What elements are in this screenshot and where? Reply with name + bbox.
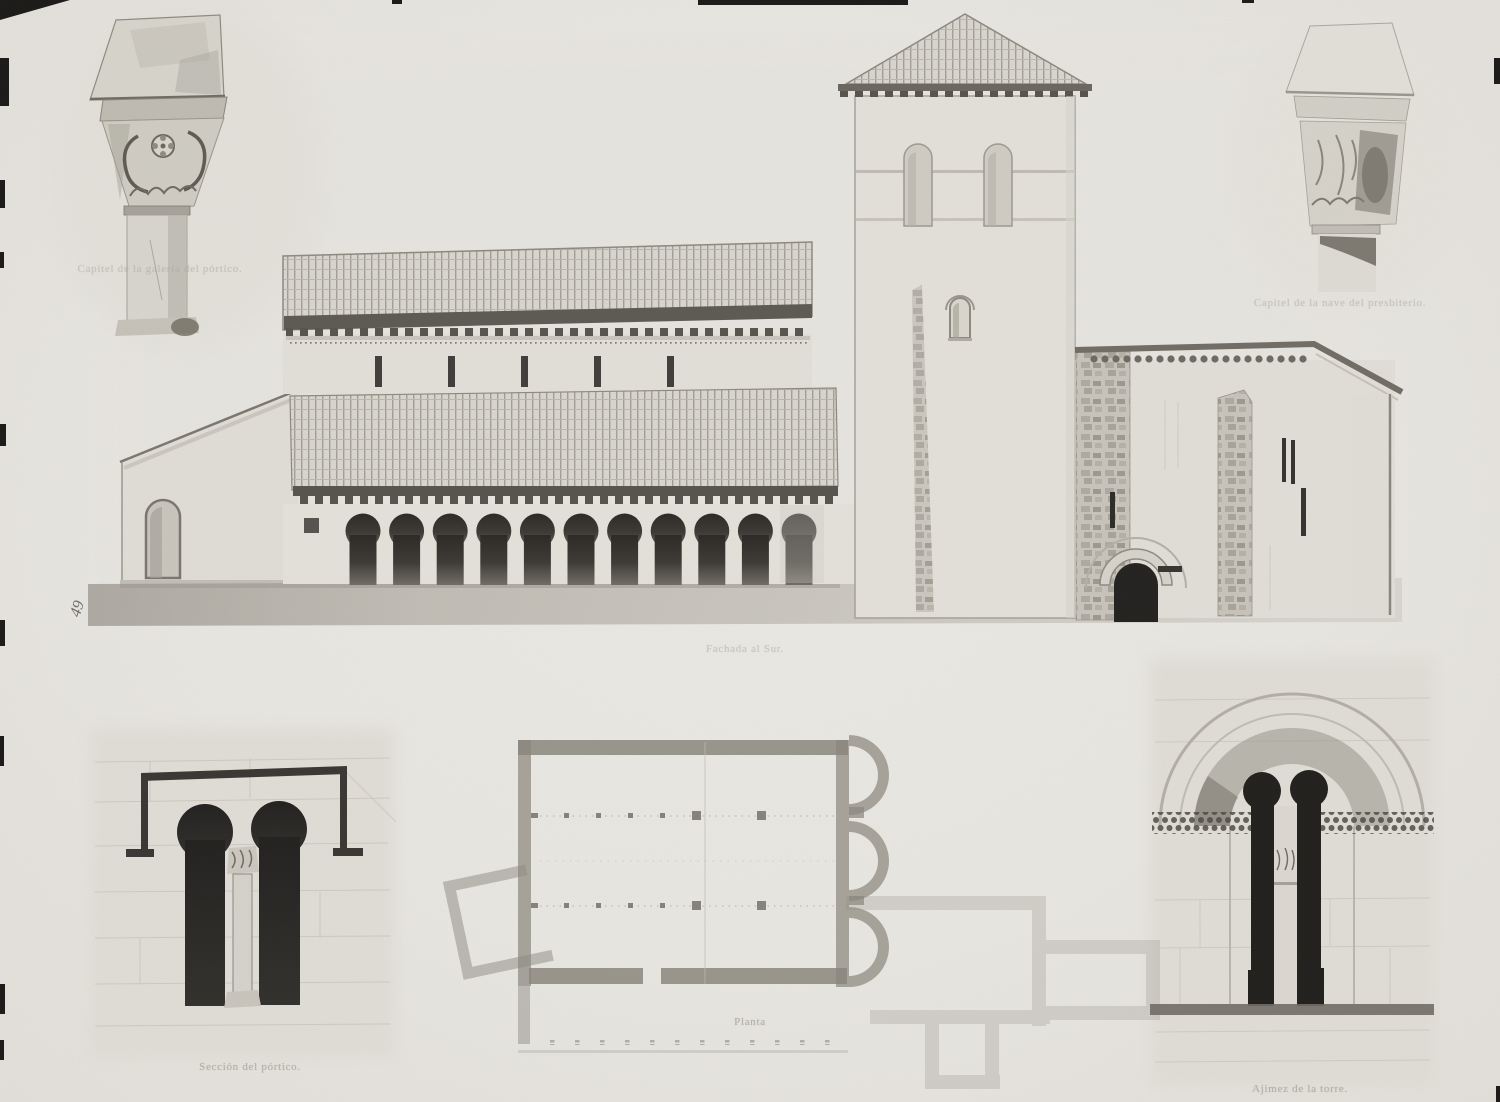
arcade-arch: [564, 514, 599, 586]
east-rubble-pier: [1218, 390, 1252, 616]
plan-east-extension-ghost: [846, 896, 1160, 1089]
clerestory-slit-window: [594, 356, 601, 387]
capital-left-molding: [100, 97, 227, 121]
nave-block: [283, 242, 855, 585]
string-course-dotted: [290, 342, 808, 345]
east-slit-window: [1282, 438, 1286, 482]
ajimez-sill: [1150, 1004, 1434, 1015]
plate-drawing: [0, 0, 1500, 1102]
small-square-window: [304, 518, 319, 533]
portico-roof: [290, 388, 838, 490]
scan-edge-artifact: [0, 180, 5, 208]
ajimez-mullion-shaft: [1274, 806, 1297, 1006]
scan-edge-artifact: [0, 0, 70, 20]
arcade-arch: [346, 514, 381, 586]
portico-eave-corbels: [295, 496, 836, 504]
arcade-arch: [607, 514, 642, 586]
arcade-arch: [738, 514, 773, 586]
scan-edge-artifact: [392, 0, 402, 4]
tower-string-course: [856, 170, 1074, 173]
caption-plan: Planta: [700, 1016, 800, 1028]
plan-south-wall: [529, 968, 643, 984]
portico-eave-fascia: [293, 486, 838, 496]
scan-edge-artifact: [698, 0, 908, 5]
arcade-arch: [694, 514, 729, 586]
scan-edge-artifact: [0, 58, 9, 106]
bell-tower: [838, 14, 1092, 618]
scan-edge-artifact: [0, 424, 6, 446]
caption-tower-window: Ajimez de la torre.: [1180, 1083, 1420, 1095]
tower-eave-corbels: [840, 91, 1090, 97]
east-end: [1075, 344, 1402, 622]
scan-edge-artifact: [0, 252, 4, 268]
plan-apse: [849, 821, 889, 901]
clerestory-slit-window: [375, 356, 382, 387]
caption-capital-right: Capitel de la nave del presbiterio.: [1215, 297, 1465, 309]
arcade-arch: [389, 514, 424, 586]
plan-columns: [531, 811, 766, 910]
plan-north-wall: [518, 740, 848, 755]
tower-eave-fascia: [838, 84, 1092, 91]
clerestory-slit-window: [667, 356, 674, 387]
arcade-arch: [520, 514, 555, 586]
capital-left-neck-ring: [124, 206, 190, 215]
plan-west-annex: [443, 863, 554, 980]
mullion-base: [224, 990, 261, 1008]
ajimez-mullion: [1274, 806, 1297, 1006]
arcade-arch: [476, 514, 511, 586]
plan-portico-columns: [540, 1040, 845, 1045]
east-slit-window: [1301, 488, 1306, 536]
east-slit-window: [1291, 440, 1295, 484]
caption-elevation: Fachada al Sur.: [635, 643, 855, 655]
clerestory-slit-window: [448, 356, 455, 387]
tower-body: [855, 96, 1075, 618]
plan-west-wall: [518, 740, 531, 986]
scan-edge-artifact: [0, 620, 5, 646]
capital-right-neck-ring: [1312, 225, 1380, 234]
nave-eave-corbels: [286, 328, 808, 336]
clerestory-slit-window: [521, 356, 528, 387]
scan-edge-artifact: [1494, 58, 1500, 84]
caption-window-section: Sección del pórtico.: [120, 1061, 380, 1073]
arcade-arch: [651, 514, 686, 586]
arcade-arch: [433, 514, 468, 586]
portal-door-opening: [1114, 563, 1158, 622]
scan-edge-artifact: [0, 984, 5, 1014]
plan-apse: [849, 735, 889, 815]
east-corner-pier: [1352, 394, 1392, 616]
east-corbel-table: [1088, 352, 1310, 367]
caption-capital-left: Capitel de la galería del pórtico.: [40, 263, 280, 275]
portico-arcade: [346, 514, 817, 586]
plan-south-wall: [661, 968, 847, 984]
capital-right-molding: [1294, 96, 1410, 121]
plan-apse: [849, 907, 889, 987]
scan-edge-artifact: [0, 1040, 4, 1060]
plan-east-wall: [836, 740, 849, 987]
scan-edge-artifact: [1242, 0, 1254, 3]
scan-edge-artifact: [1496, 1086, 1500, 1102]
scan-edge-artifact: [0, 736, 4, 766]
scanned-architectural-plate: Capitel de la galería del pórtico. Capit…: [0, 0, 1500, 1102]
floor-plan: [443, 735, 1160, 1089]
mullion-shaft: [233, 874, 252, 992]
tower-string-course: [856, 218, 1074, 221]
east-slit-window: [1110, 492, 1115, 528]
portal-impost-bar: [1158, 566, 1182, 572]
